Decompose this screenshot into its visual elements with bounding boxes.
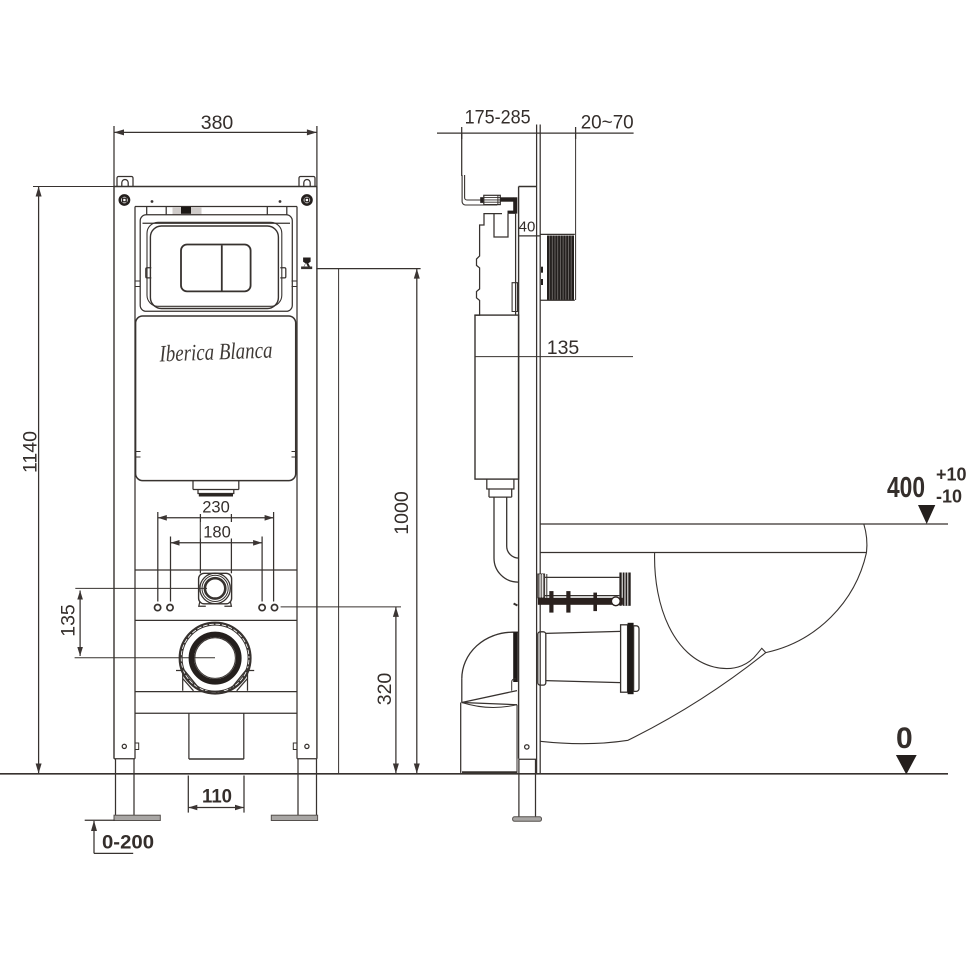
svg-text:175-285: 175-285 bbox=[465, 107, 531, 129]
svg-text:230: 230 bbox=[202, 499, 230, 517]
svg-text:135: 135 bbox=[547, 337, 580, 359]
svg-text:135: 135 bbox=[58, 604, 80, 637]
svg-text:110: 110 bbox=[202, 786, 232, 808]
svg-text:400: 400 bbox=[887, 472, 925, 504]
svg-text:0: 0 bbox=[896, 722, 913, 755]
svg-text:-10: -10 bbox=[936, 487, 962, 507]
svg-text:180: 180 bbox=[203, 524, 231, 542]
svg-text:0-200: 0-200 bbox=[102, 832, 154, 854]
svg-text:380: 380 bbox=[201, 112, 234, 134]
svg-text:1140: 1140 bbox=[20, 431, 42, 473]
svg-text:20~70: 20~70 bbox=[581, 112, 634, 134]
svg-text:320: 320 bbox=[374, 673, 396, 706]
svg-text:40: 40 bbox=[519, 219, 536, 236]
svg-text:1000: 1000 bbox=[391, 491, 413, 535]
svg-text:+10: +10 bbox=[936, 465, 967, 485]
svg-text:Iberica Blanca: Iberica Blanca bbox=[158, 338, 273, 368]
